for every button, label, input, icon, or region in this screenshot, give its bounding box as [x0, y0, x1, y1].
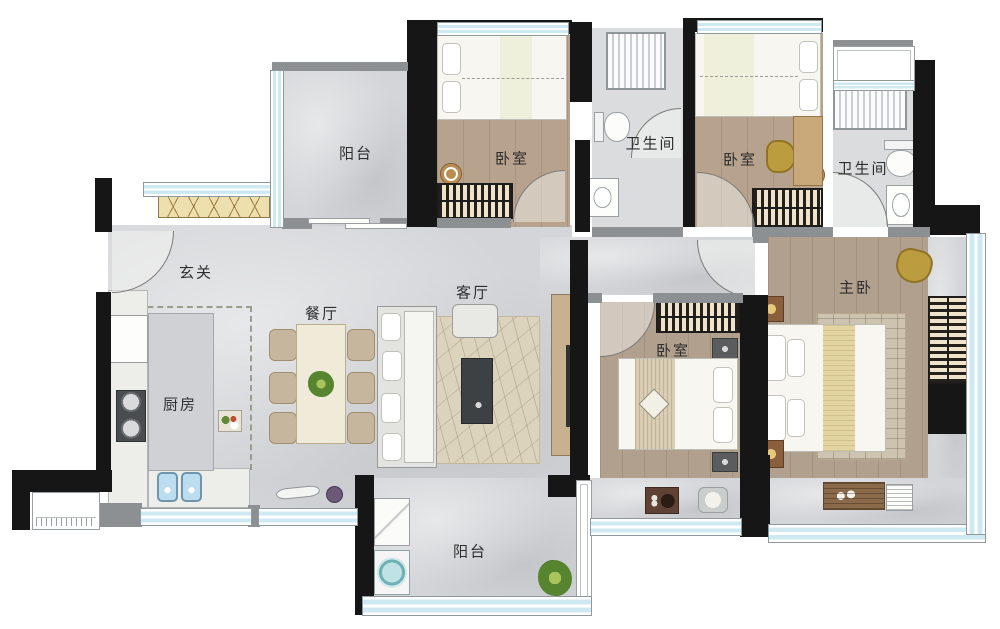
window-balcony-bottom — [362, 596, 592, 616]
bedroom-c-wardrobe — [656, 300, 740, 333]
wall-partition — [653, 293, 743, 303]
kitchen-sink-right-icon — [181, 472, 202, 502]
bed-center-line — [462, 78, 564, 79]
vanity-sink-b-icon — [886, 185, 916, 225]
bed-pillow — [799, 41, 818, 73]
wall — [96, 292, 111, 474]
wall-partition — [437, 218, 511, 228]
window — [590, 518, 742, 536]
window — [270, 70, 284, 228]
bay-pillow-icon — [698, 487, 728, 513]
dining-centerpiece-plant-icon — [308, 371, 334, 397]
window — [697, 20, 822, 34]
dining-chair — [269, 412, 297, 444]
window — [966, 233, 986, 535]
wall — [927, 205, 980, 235]
bed-pillow — [713, 407, 733, 443]
sofa-cushion — [382, 433, 402, 461]
bedroom-b-chair — [766, 140, 796, 173]
bedroom-c-nightstand — [712, 452, 738, 472]
cutting-board-icon — [218, 410, 242, 432]
stove-icon — [116, 390, 146, 442]
bedroom-c-nightstand — [712, 338, 738, 360]
wall — [570, 22, 592, 102]
kitchen-open-boundary-vertical — [250, 306, 252, 470]
bedroom-c-bed — [618, 358, 738, 450]
window — [768, 524, 986, 543]
window — [140, 508, 252, 526]
dining-chair — [347, 372, 375, 404]
floor-plan: 阳台 卧室 卫生间 卧室 卫生间 玄关 餐厅 客厅 厨房 卧室 主卧 阳台 — [0, 0, 1000, 629]
room-label-entry: 玄关 — [179, 262, 213, 283]
bay-book-icon — [886, 484, 913, 511]
bed-pillow — [442, 43, 461, 75]
room-label-bedroom-a: 卧室 — [495, 148, 529, 169]
bay-tray-icon — [645, 487, 679, 514]
wall-partition — [888, 227, 930, 237]
toilet-b-icon — [886, 150, 916, 177]
wall-partition — [272, 62, 408, 71]
master-bed — [760, 324, 886, 452]
room-label-master: 主卧 — [839, 277, 873, 298]
window-frame — [576, 480, 592, 612]
bedroom-a-bed — [437, 35, 567, 120]
balcony-sliding-door — [345, 223, 407, 229]
window — [833, 80, 915, 91]
dining-chair — [269, 329, 297, 361]
wall — [12, 470, 30, 530]
shower-b-icon — [833, 88, 907, 130]
bed-pillow — [713, 367, 733, 403]
ac-platform-hatch — [36, 517, 96, 526]
room-label-dining: 餐厅 — [305, 303, 339, 324]
wall — [928, 384, 970, 434]
dining-chair — [347, 329, 375, 361]
room-label-balcony-top: 阳台 — [339, 143, 373, 164]
sofa-cushion — [382, 351, 402, 381]
kitchen-fridge — [110, 315, 148, 363]
coffee-table — [461, 358, 493, 424]
room-label-bedroom-c: 卧室 — [656, 340, 690, 361]
wall-partition — [753, 227, 768, 243]
room-label-living: 客厅 — [456, 282, 490, 303]
kitchen-island — [148, 313, 214, 471]
window — [437, 22, 569, 36]
shower-a-icon — [606, 32, 666, 90]
bay-bench-icon — [823, 482, 885, 510]
room-label-bathroom-a: 卫生间 — [625, 133, 676, 154]
dining-chair — [269, 372, 297, 404]
sofa-cushion — [381, 393, 401, 423]
wall — [355, 475, 374, 615]
bed-pillow — [442, 81, 461, 113]
bed-pillow — [787, 399, 805, 437]
wall — [95, 178, 112, 232]
wall-partition — [592, 227, 683, 237]
wall-partition — [100, 503, 142, 527]
wall-partition — [588, 293, 602, 303]
washing-machine-icon — [374, 550, 410, 595]
room-label-bathroom-b: 卫生间 — [837, 158, 888, 179]
wall — [570, 240, 588, 475]
toilet-a-tank — [594, 112, 604, 142]
wall — [740, 295, 768, 478]
kitchen-sink-left-icon — [157, 472, 178, 502]
bed-center-line — [700, 76, 798, 77]
sofa — [377, 306, 437, 468]
balcony-plant-icon — [538, 560, 572, 596]
bedroom-b-wardrobe — [752, 188, 823, 227]
window — [143, 182, 274, 197]
bedroom-b-desk — [793, 116, 823, 186]
bed-runner — [823, 325, 855, 451]
wall — [740, 455, 770, 537]
window — [258, 508, 358, 526]
bed-pillow — [799, 79, 818, 111]
bedroom-a-wardrobe — [437, 183, 513, 219]
bedroom-b-bed — [695, 33, 821, 117]
armchair — [452, 304, 498, 338]
sofa-cushion — [381, 313, 401, 341]
room-label-bedroom-b: 卧室 — [723, 149, 757, 170]
room-label-kitchen: 厨房 — [163, 394, 197, 415]
master-wardrobe — [928, 296, 968, 384]
wall — [407, 20, 437, 227]
sofa-seat — [404, 311, 434, 463]
bedroom-a-pouf-icon — [440, 163, 462, 185]
room-label-balcony-bottom: 阳台 — [453, 541, 487, 562]
decor-pot-icon — [326, 486, 343, 503]
dining-chair — [347, 412, 375, 444]
bed-throw — [704, 34, 754, 116]
bed-pillow — [787, 339, 805, 377]
wall — [575, 140, 590, 232]
wall — [683, 18, 695, 227]
ac-platform — [32, 492, 100, 530]
vanity-sink-a-icon — [586, 178, 619, 217]
laundry-sink-icon — [374, 498, 410, 546]
